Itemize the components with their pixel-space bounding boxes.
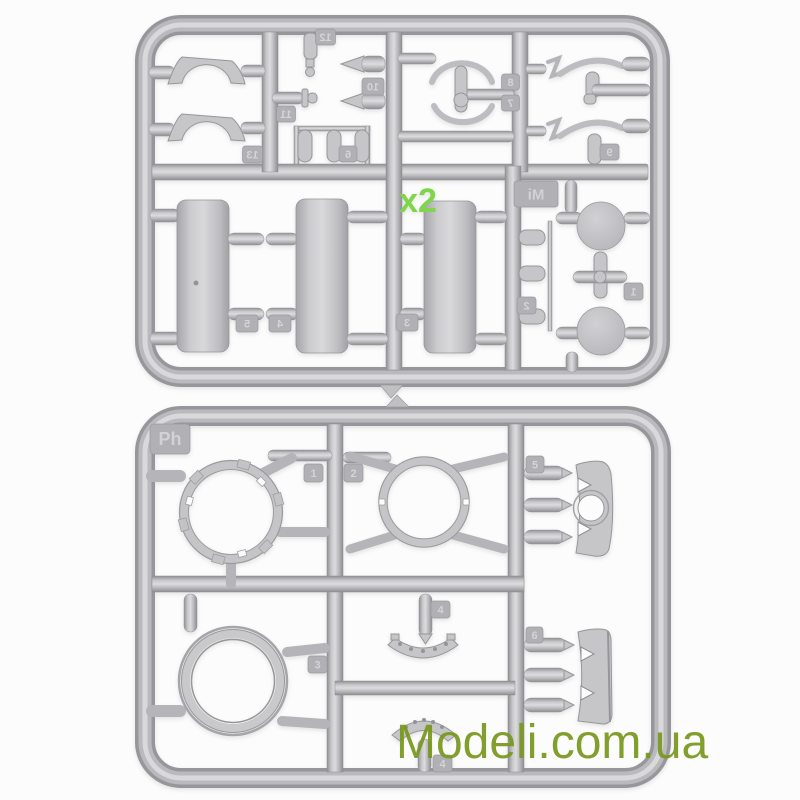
fender-arch-parts	[149, 57, 265, 141]
clamp-parts	[398, 53, 514, 142]
part-tag-13: 13	[246, 150, 258, 162]
part-tag-12: 12	[319, 32, 331, 44]
disc-top	[577, 202, 625, 250]
fuel-drum-2	[296, 199, 348, 353]
part-tag-2: 2	[523, 301, 529, 313]
watermark-text: Modeli.com.ua	[396, 716, 708, 769]
product-photo: 13 12 11 10 8 7 9 6 5 4 3 2 1 Mi x2	[0, 0, 800, 800]
sprue-key-tab	[386, 395, 409, 407]
runner-horizontal-right	[335, 681, 515, 695]
brand-plate: Ph	[150, 424, 190, 454]
sprue-key-tab	[380, 385, 403, 398]
quantity-label: x2	[399, 182, 437, 220]
part-tag-6: 6	[531, 630, 537, 642]
part-tag-5: 5	[532, 460, 538, 472]
small-cylinder-rack	[294, 126, 370, 164]
runner-horizontal-mid	[152, 576, 524, 592]
drum-end-discs	[556, 180, 650, 372]
small-bracket-part	[304, 33, 317, 77]
sprue-photo-canvas: 13 12 11 10 8 7 9 6 5 4 3 2 1 Mi x2	[0, 0, 800, 800]
part-tag-2: 2	[350, 468, 356, 480]
part-tag-11: 11	[280, 109, 292, 121]
ring-smooth	[152, 594, 325, 735]
part-tag-5: 5	[244, 319, 250, 331]
plug-part	[272, 89, 317, 107]
disc-bottom	[577, 307, 625, 355]
part-tag-6: 6	[345, 149, 351, 161]
turret-ring-plain	[350, 456, 504, 549]
runner-vertical-a	[327, 424, 343, 772]
part-tag-3: 3	[314, 660, 320, 672]
wiper-arm-parts	[526, 57, 650, 164]
part-tag-8: 8	[507, 77, 513, 89]
fuel-drum-3	[424, 201, 476, 353]
fitting-cylinders	[519, 221, 552, 331]
part-tag-3: 3	[404, 318, 410, 330]
part-tag-9: 9	[606, 147, 612, 159]
part-tag-10: 10	[367, 82, 379, 94]
fuel-drum-1	[177, 200, 229, 352]
turret-ring-notched	[152, 458, 325, 584]
part-tag-4a: 4	[437, 605, 444, 617]
brand-tag-ph: Ph	[158, 429, 181, 449]
part-tag-4: 4	[276, 319, 283, 331]
brand-tag-mi: Mi	[528, 187, 545, 204]
upper-sprue: 13 12 11 10 8 7 9 6 5 4 3 2 1 Mi x2	[145, 25, 660, 398]
gun-shield-with-hole	[524, 461, 613, 556]
fuel-drum-parts	[150, 199, 507, 353]
part-tag-7: 7	[507, 98, 513, 110]
part-tag-1: 1	[310, 468, 316, 480]
part-tag-1: 1	[630, 287, 636, 299]
